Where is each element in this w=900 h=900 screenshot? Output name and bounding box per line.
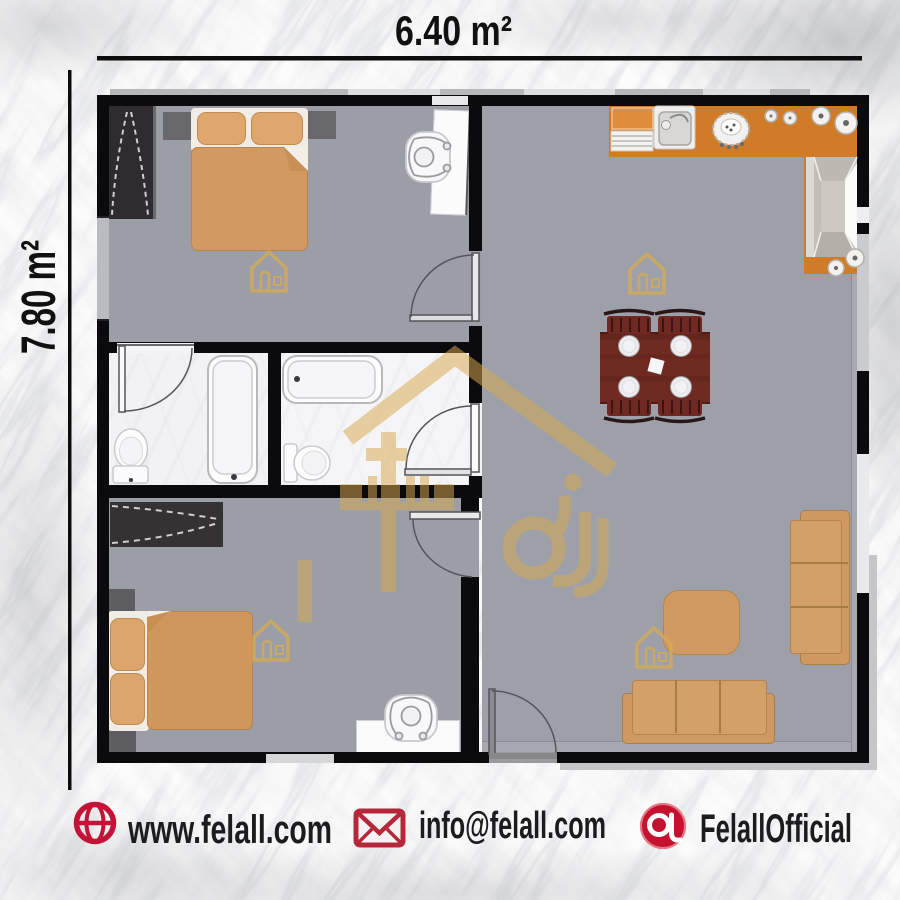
svg-text:info@felall.com: info@felall.com bbox=[419, 805, 606, 847]
svg-text:7.80 m²: 7.80 m² bbox=[13, 240, 66, 354]
svg-text:FelallOfficial: FelallOfficial bbox=[700, 807, 852, 851]
svg-text:www.felall.com: www.felall.com bbox=[127, 808, 332, 852]
svg-text:6.40 m²: 6.40 m² bbox=[395, 7, 512, 54]
